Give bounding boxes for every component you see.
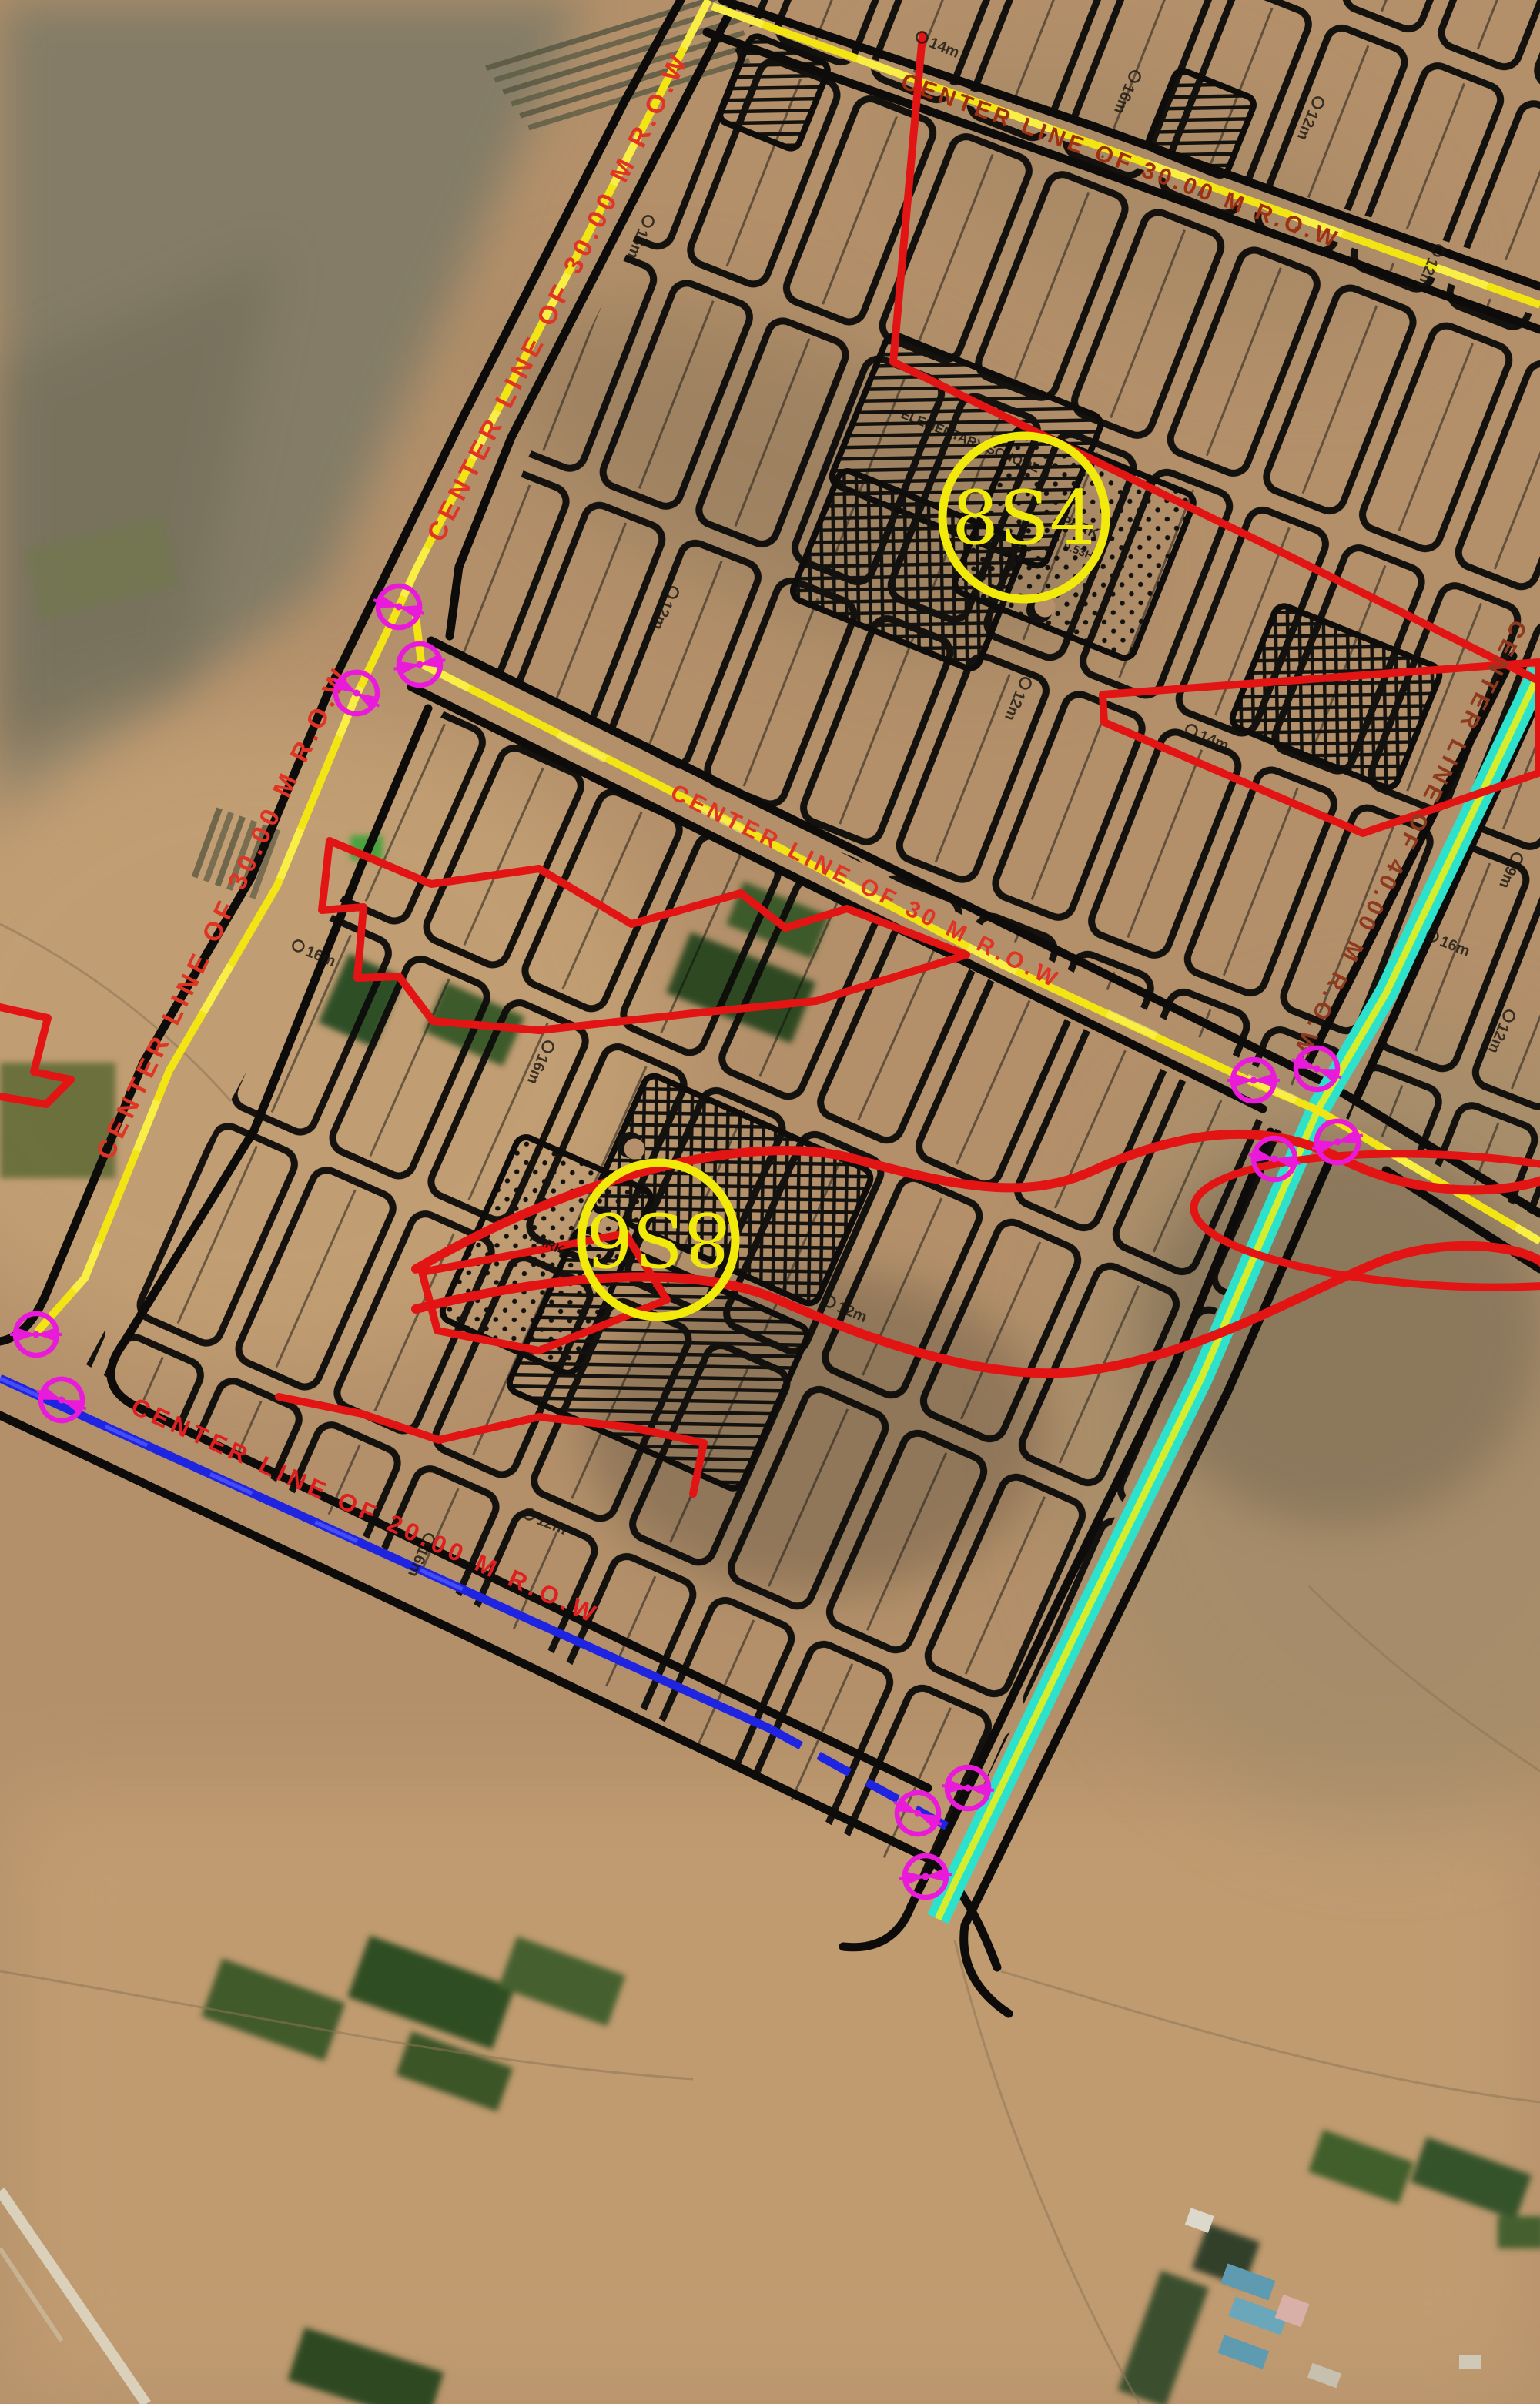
plat-satellite-map: 16m12m16m12m14m12m9m12m16m16m12m16m12m16…	[0, 0, 1540, 2404]
zone-label: 8S4	[952, 475, 1096, 561]
light-sand-south	[0, 1786, 1540, 2404]
zone-label: 8S6	[586, 1196, 731, 1282]
map-overlay-svg: 16m12m16m12m14m12m9m12m16m16m12m16m12m16…	[0, 0, 1540, 2404]
